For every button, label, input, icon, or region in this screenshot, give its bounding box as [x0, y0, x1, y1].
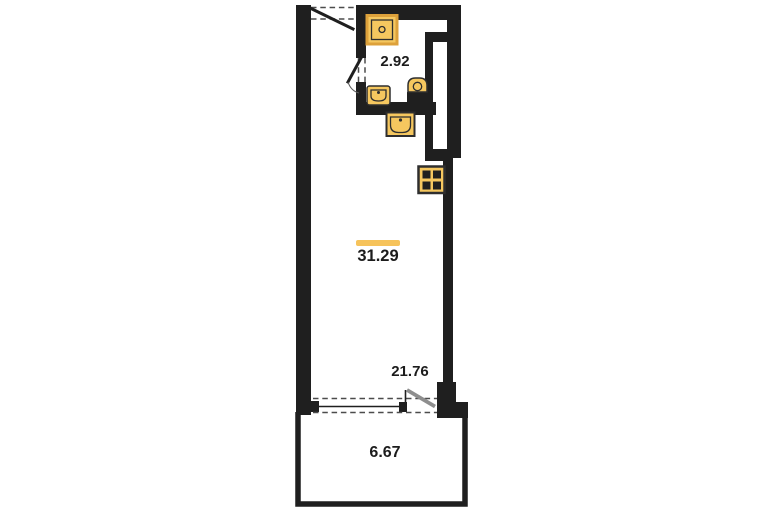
room-area-label-bathroom: 2.92	[370, 54, 420, 69]
selected-room-highlight-bar	[356, 240, 400, 246]
room-area-label-living-room: 21.76	[380, 364, 440, 379]
stove-fixture	[419, 167, 445, 194]
toilet-fixture	[408, 78, 427, 92]
kitchen-sink-fixture	[387, 113, 415, 137]
room-area-label-balcony: 6.67	[355, 445, 415, 461]
washbasin-fixture	[367, 86, 390, 105]
room-area-label-total: 31.29	[348, 248, 408, 265]
shower-fixture	[367, 16, 397, 45]
balcony-window	[313, 399, 437, 413]
floor-plan: 2.92 31.29 21.76 6.67	[0, 0, 770, 510]
entrance-door	[310, 8, 357, 30]
